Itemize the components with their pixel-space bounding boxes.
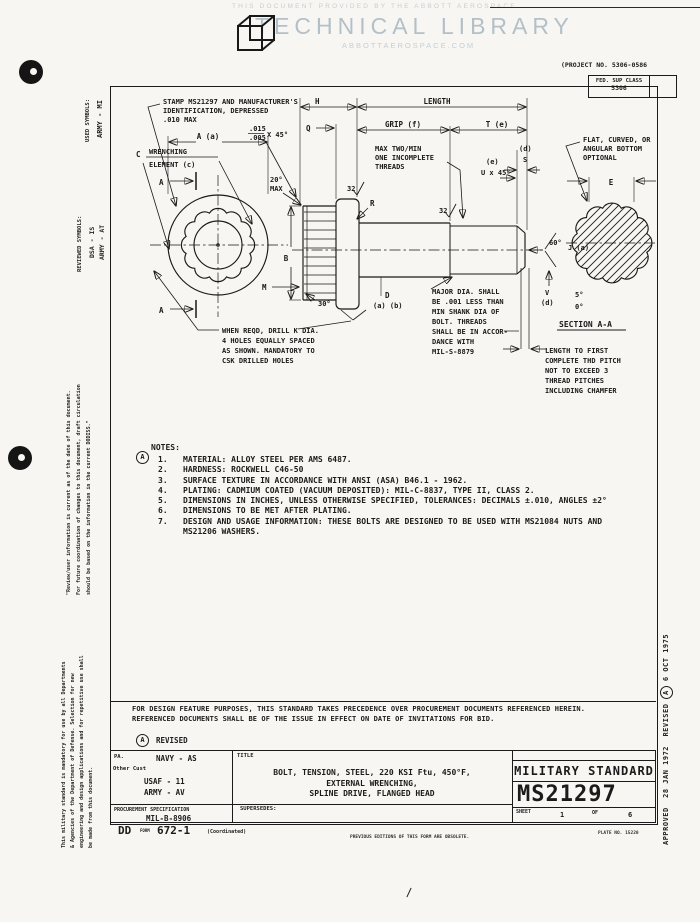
mandatory-note-line4: be made from this document. [88, 608, 94, 848]
title-label: TITLE [237, 753, 254, 759]
pa-label: PA. [114, 754, 124, 760]
svg-text:MIN SHANK DIA OF: MIN SHANK DIA OF [432, 308, 499, 316]
svg-text:BE .001 LESS THAN: BE .001 LESS THAN [432, 298, 504, 306]
sheet-value: 1 [560, 811, 564, 819]
standard-number: MS21297 [517, 782, 617, 807]
notes-revision-badge: A [136, 451, 149, 464]
note-item-6: 6.DIMENSIONS TO BE MET AFTER PLATING. [158, 506, 638, 516]
custodian-usaf: USAF - 11 [144, 777, 185, 786]
punch-hole-top-center [30, 68, 37, 75]
svg-text:C: C [136, 150, 141, 159]
dim-r-label: R [370, 199, 375, 208]
project-number: (PROJECT NO. 5306-0586 [561, 61, 647, 69]
revised-date: 6 OCT 1975 [662, 634, 670, 681]
svg-text:COMPLETE THD PITCH: COMPLETE THD PITCH [545, 357, 621, 365]
sheet-label: SHEET [516, 809, 531, 815]
ms-box-top [512, 760, 656, 761]
section-aa-view: E FLAT, CURVED, OR ANGULAR BOTTOM OPTION… [500, 136, 658, 330]
major-dia-callout: MAJOR DIA. SHALL BE .001 LESS THAN MIN S… [431, 277, 519, 356]
svg-text:LENGTH TO FIRST: LENGTH TO FIRST [545, 347, 608, 355]
dim-d-ref: (a) (b) [373, 302, 403, 310]
revision-letter-badge: A [660, 686, 673, 699]
flat-callout-3: OPTIONAL [583, 154, 617, 162]
mandatory-note-line1: This military standard is mandatory for … [61, 608, 67, 848]
previous-editions-note: PREVIOUS EDITIONS OF THIS FORM ARE OBSOL… [350, 835, 469, 840]
note-item-7: 7.DESIGN AND USAGE INFORMATION: THESE BO… [158, 517, 638, 527]
reviewed-symbols-label: REVIEWED SYMBOLS: [77, 180, 83, 272]
note-item-1: 1.MATERIAL: ALLOY STEEL PER AMS 6487. [158, 455, 638, 465]
dd-form-coordinated: (Coordinated) [207, 829, 246, 835]
incomplete-threads-3: THREADS [375, 163, 405, 171]
engineering-drawing: A A A (a) STAMP MS21297 AND MANUFACTURER… [110, 84, 658, 464]
section-aa-label: SECTION A-A [559, 320, 612, 329]
dim-q-label: Q [306, 124, 311, 133]
drill-callout: WHEN REQD, DRILL K DIA. 4 HOLES EQUALLY … [154, 271, 351, 365]
svg-text:DANCE WITH: DANCE WITH [432, 338, 474, 346]
flat-callout-2: ANGULAR BOTTOM [583, 145, 642, 153]
dim-s-label: S [523, 156, 527, 164]
dim-j-label: J (a) [568, 244, 589, 252]
angle-chamfer-min: 0° [575, 303, 583, 311]
svg-text:BOLT. THREADS: BOLT. THREADS [432, 318, 487, 326]
dim-m-label: M [262, 283, 267, 292]
mandatory-note-line3: engineering and design applications and … [79, 608, 85, 848]
note-item-3: 3.SURFACE TEXTURE IN ACCORDANCE WITH ANS… [158, 476, 638, 486]
document-title: BOLT, TENSION, STEEL, 220 KSI Ftu, 450°F… [232, 768, 512, 800]
approved-label: APPROVED [662, 807, 670, 845]
svg-text:SHALL BE IN ACCOR-: SHALL BE IN ACCOR- [432, 328, 508, 336]
angle-30-label: 30° [318, 300, 331, 308]
svg-text:IDENTIFICATION, DEPRESSED: IDENTIFICATION, DEPRESSED [163, 107, 268, 115]
spline-ridges [304, 212, 336, 293]
footer-separator [110, 701, 656, 702]
ms-box-sheet [512, 807, 656, 808]
svg-text:MAJOR DIA. SHALL: MAJOR DIA. SHALL [432, 288, 499, 296]
review-note-line1: "Review/user information is current as o… [66, 305, 72, 595]
used-symbols-label: USED SYMBOLS: [85, 60, 91, 142]
sheet-total: 6 [628, 811, 632, 819]
svg-text:THREAD PITCHES: THREAD PITCHES [545, 377, 604, 385]
note-item-2: 2.HARDNESS: ROCKWELL C46-50 [158, 465, 638, 475]
dd-form-small: FORM [140, 828, 150, 833]
used-symbols-value: ARMY - MI [96, 64, 104, 138]
review-note-line3: should be based on the information in th… [86, 305, 92, 595]
top-edge-rule [490, 7, 700, 8]
svg-text:INCLUDING CHAMFER: INCLUDING CHAMFER [545, 387, 617, 395]
wrenching-element-callout: C WRENCHING ELEMENT (c) [136, 148, 252, 249]
precedence-line-2: REFERENCED DOCUMENTS SHALL BE OF THE ISS… [132, 715, 494, 723]
svg-text:MAX: MAX [270, 185, 283, 193]
thread-pitch-callout: LENGTH TO FIRST COMPLETE THD PITCH NOT T… [503, 268, 621, 395]
svg-text:.015: .015 [249, 125, 266, 133]
svg-text:X 45°: X 45° [267, 131, 288, 139]
dim-length-label: LENGTH [423, 97, 451, 106]
svg-text:CSK DRILLED HOLES: CSK DRILLED HOLES [222, 357, 294, 365]
svg-text:WRENCHING: WRENCHING [149, 148, 187, 156]
pa-value: NAVY - AS [156, 754, 197, 763]
dim-b-label: B [284, 254, 289, 263]
supersedes-label: SUPERSEDES: [240, 806, 276, 812]
revised-label: REVISED [662, 704, 670, 737]
plate-number: PLATE NO. 15220 [598, 831, 639, 836]
proc-spec-value: MIL-B-8906 [146, 814, 191, 823]
approval-dates: APPROVED 28 JAN 1972 REVISED A 6 OCT 197… [660, 543, 673, 845]
svg-text:.005: .005 [249, 134, 266, 142]
svg-text:4 HOLES EQUALLY SPACED: 4 HOLES EQUALLY SPACED [222, 337, 315, 345]
sheet-of-label: OF [592, 810, 598, 816]
dim-v-label: V [545, 289, 550, 297]
section-arrow-bottom-label: A [159, 306, 164, 315]
svg-text:AS SHOWN. MANDATORY TO: AS SHOWN. MANDATORY TO [222, 347, 315, 355]
proc-spec-label: PROCUREMENT SPECIFICATION [114, 807, 189, 813]
custodian-army: ARMY - AV [144, 788, 185, 797]
head-front-view: A A A (a) [150, 132, 288, 318]
approved-date: 28 JAN 1972 [662, 746, 670, 798]
review-note-line2: For future coordination of changes to th… [76, 305, 82, 595]
scanned-military-standard-page: THIS DOCUMENT PROVIDED BY THE ABBOTT AER… [0, 0, 700, 922]
stray-mark [406, 888, 411, 897]
mandatory-note-line2: & Agencies of the Department of Defense.… [70, 608, 76, 848]
svg-text:NOT TO EXCEED 3: NOT TO EXCEED 3 [545, 367, 608, 375]
svg-text:STAMP MS21297 AND MANUFACTURER: STAMP MS21297 AND MANUFACTURER'S [163, 98, 298, 106]
angle-chamfer-max: 5° [575, 291, 583, 299]
dim-h-label: H [315, 97, 320, 106]
dim-s-ref: (d) [519, 145, 532, 153]
flange [336, 199, 359, 309]
dim-u-ref: (e) [486, 158, 499, 166]
incomplete-threads-1: MAX TWO/MIN [375, 145, 421, 153]
note-item-7-cont: MS21206 WASHERS. [158, 527, 638, 537]
dim-t-label: T (e) [486, 120, 509, 129]
footer-revision-badge: A [136, 734, 149, 747]
svg-text:MIL-S-8879: MIL-S-8879 [432, 348, 474, 356]
technical-library-logo-text: TECHNICAL LIBRARY [255, 13, 574, 40]
cube-logo-icon [228, 8, 280, 60]
dim-d-label: D [385, 291, 390, 300]
reviewed-symbols-value1: DSA - IS [88, 188, 96, 258]
dd-form-number: 672-1 [157, 824, 190, 837]
angle-20-callout: 20° MAX [270, 176, 301, 205]
dd-form-label: DD [118, 824, 131, 837]
dim-u-label: U x 45° [481, 169, 511, 177]
standard-type: MILITARY STANDARD [512, 764, 656, 778]
flat-callout-1: FLAT, CURVED, OR [583, 136, 651, 144]
svg-text:20°: 20° [270, 176, 283, 184]
svg-text:.010 MAX: .010 MAX [163, 116, 198, 124]
watermark-site-url: ABBOTTAEROSPACE.COM [342, 41, 475, 50]
notes-title: NOTES: [151, 443, 180, 452]
incomplete-threads-2: ONE INCOMPLETE [375, 154, 434, 162]
note-item-5: 5.DIMENSIONS IN INCHES, UNLESS OTHERWISE… [158, 496, 638, 506]
reviewed-symbols-value2: ARMY - AT [98, 184, 106, 260]
dim-a-label: A (a) [197, 132, 220, 141]
title-block-row-divider [110, 804, 512, 805]
precedence-line-1: FOR DESIGN FEATURE PURPOSES, THIS STANDA… [132, 705, 585, 713]
dim-grip-label: GRIP (f) [385, 120, 421, 129]
dim-v-ref: (d) [541, 299, 554, 307]
section-arrow-top-label: A [159, 178, 164, 187]
punch-hole-middle-center [18, 454, 25, 461]
other-cust-label: Other Cust [113, 766, 146, 772]
dim-e-label: E [609, 178, 614, 187]
note-item-4: 4.PLATING: CADMIUM COATED (VACUUM DEPOSI… [158, 486, 638, 496]
footer-revised-label: REVISED [156, 736, 188, 745]
svg-text:ELEMENT (c): ELEMENT (c) [149, 161, 195, 169]
